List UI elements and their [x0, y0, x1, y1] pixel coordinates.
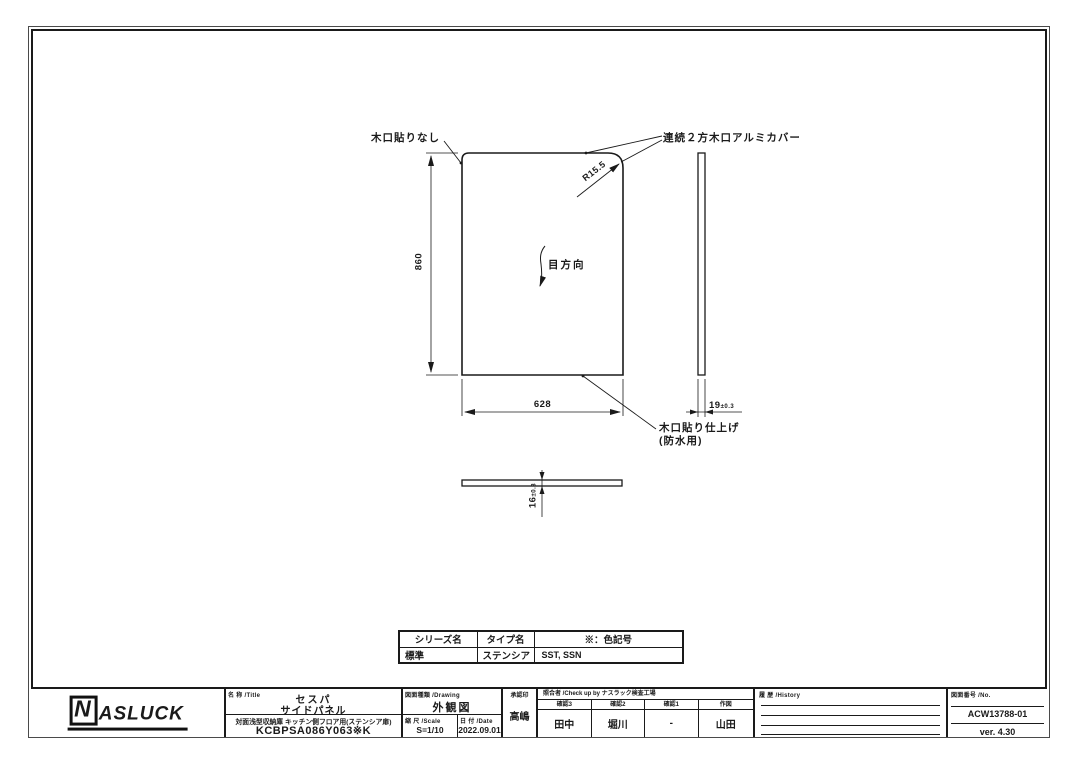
dim-thickness-text: 19±0.3: [709, 400, 734, 411]
logo-cell: N ASLUCK: [31, 689, 226, 737]
spec-header-color: ※：色記号: [534, 631, 683, 647]
dimension-thickness: [686, 379, 742, 417]
check-label: 照合者 /Check up by ナスラック検査工場: [538, 689, 753, 700]
drawing-no-value: ACW13788-01: [948, 709, 1047, 719]
label-edge-finish-line2: (防水用): [659, 433, 703, 448]
panel-side-view: [698, 153, 705, 375]
history-label: 履 歴 /History: [759, 690, 800, 699]
spec-table: シリーズ名 タイプ名 ※：色記号 標準 ステンシア SST, SSN: [398, 630, 684, 664]
spec-table-row: 標準 ステンシア SST, SSN: [399, 647, 683, 663]
check-col-2: 確認2 堀川: [592, 700, 646, 737]
model-code: KCBPSA086Y063※K: [226, 724, 401, 737]
history-rule-3: [761, 725, 940, 726]
title-cell: 名 称 /Title セスパ サイドパネル 対面浅型収納庫 キッチン側フロア用(…: [226, 689, 403, 737]
history-rule-2: [761, 715, 940, 716]
check-1-label: 確認1: [645, 700, 698, 710]
spec-header-series: シリーズ名: [399, 631, 477, 647]
approval-cell: 承認印 高嶋: [503, 689, 538, 737]
title-block: N ASLUCK 名 称 /Title セスパ サイドパネル 対面浅型収納庫 キ…: [31, 687, 1047, 737]
drawing-no-cell: 図面番号 /No. ACW13788-01 ver. 4.30: [948, 689, 1047, 737]
version-value: ver. 4.30: [948, 727, 1047, 737]
scale-value: S=1/10: [403, 725, 457, 735]
approval-label: 承認印: [503, 690, 536, 699]
check-draw-label: 作図: [699, 700, 753, 710]
check-3-label: 確認3: [538, 700, 591, 710]
logo-text: ASLUCK: [99, 705, 184, 726]
approval-value: 高嶋: [503, 708, 536, 723]
scale-cell: 縮 尺 /Scale S=1/10: [403, 715, 458, 737]
date-label: 日 付 /Date: [460, 716, 493, 725]
dimension-bottom-thickness: [540, 470, 545, 517]
drawing-type-label: 図面種類 /Drawing: [405, 690, 460, 699]
dimension-width: [462, 379, 623, 416]
check-wrap: 照合者 /Check up by ナスラック検査工場 確認3 田中 確認2 堀川…: [538, 689, 753, 737]
check-1-value: -: [645, 710, 698, 737]
dim-height-text: 860: [414, 245, 425, 279]
label-alumi-cover: 連続２方木口アルミカバー: [663, 130, 801, 145]
no-cell-rule-2: [951, 723, 1044, 724]
check-columns: 確認3 田中 確認2 堀川 確認1 - 作図 山田: [538, 700, 753, 737]
dimension-height: [426, 153, 458, 375]
spec-header-type: タイプ名: [477, 631, 534, 647]
scale-label: 縮 尺 /Scale: [405, 716, 441, 725]
label-grain-direction: 目方向: [548, 257, 586, 272]
dim-width-text: 628: [462, 399, 623, 410]
title-divider: [226, 714, 401, 715]
drawing-type-cell: 図面種類 /Drawing 外観図 縮 尺 /Scale S=1/10 日 付 …: [403, 689, 503, 737]
no-cell-rule-1: [951, 706, 1044, 707]
drawing-type-value: 外観図: [403, 699, 501, 715]
nasluck-logo: N ASLUCK: [67, 696, 188, 731]
check-3-value: 田中: [538, 710, 591, 737]
check-col-draw: 作図 山田: [699, 700, 753, 737]
scale-date-row: 縮 尺 /Scale S=1/10 日 付 /Date 2022.09.01: [403, 715, 501, 737]
drawing-no-label: 図面番号 /No.: [951, 690, 991, 699]
panel-front-view: [462, 153, 623, 375]
check-2-value: 堀川: [592, 710, 645, 737]
check-col-1: 確認1 -: [645, 700, 699, 737]
spec-table-header-row: シリーズ名 タイプ名 ※：色記号: [399, 631, 683, 647]
check-draw-value: 山田: [699, 710, 753, 737]
date-value: 2022.09.01: [458, 725, 501, 735]
check-cell: 照合者 /Check up by ナスラック検査工場 確認3 田中 確認2 堀川…: [538, 689, 755, 737]
history-cell: 履 歴 /History: [755, 689, 948, 737]
spec-cell-series: 標準: [399, 647, 477, 663]
dim-bottom-thickness-text: 16±0.3: [528, 474, 539, 518]
history-rule-4: [761, 734, 940, 735]
spec-cell-color: SST, SSN: [534, 647, 683, 663]
history-rule-1: [761, 705, 940, 706]
date-cell: 日 付 /Date 2022.09.01: [458, 715, 501, 737]
check-col-3: 確認3 田中: [538, 700, 592, 737]
check-2-label: 確認2: [592, 700, 645, 710]
logo-letter-n: N: [69, 696, 98, 726]
label-no-edge-band: 木口貼りなし: [371, 130, 440, 145]
drawing-sheet: 木口貼りなし 連続２方木口アルミカバー R15.5 860 目方向 628 19…: [0, 0, 1080, 764]
spec-cell-type: ステンシア: [477, 647, 534, 663]
